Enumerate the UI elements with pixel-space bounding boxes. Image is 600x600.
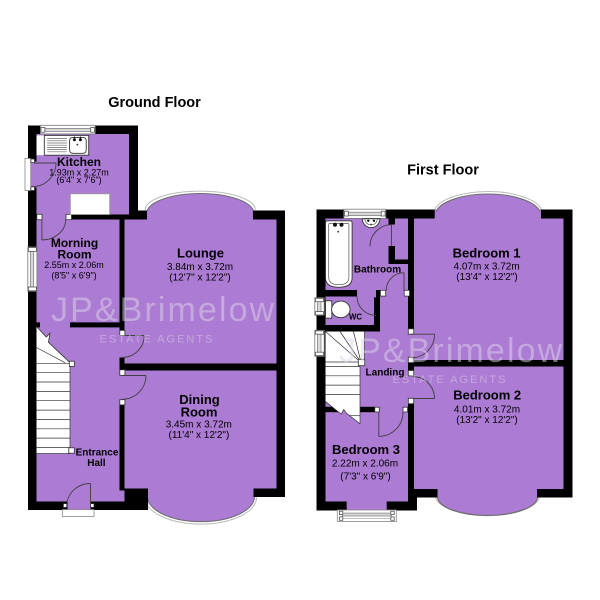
svg-text:(11'4" x 12'2"): (11'4" x 12'2") (169, 430, 230, 441)
svg-text:4.01m x 3.72m: 4.01m x 3.72m (454, 404, 520, 415)
svg-text:JP&Brimelow: JP&Brimelow (339, 332, 564, 370)
svg-text:(13'4" x 12'2"): (13'4" x 12'2") (456, 272, 518, 283)
svg-text:JP&Brimelow: JP&Brimelow (51, 291, 276, 329)
svg-text:ESTATE AGENTS: ESTATE AGENTS (393, 374, 508, 386)
svg-text:(6'4" x 7'6"): (6'4" x 7'6") (56, 175, 101, 185)
svg-text:4.07m x 3.72m: 4.07m x 3.72m (454, 262, 520, 273)
svg-text:Bedroom 1: Bedroom 1 (453, 246, 521, 261)
svg-text:Room: Room (181, 404, 218, 419)
svg-text:2.22m x 2.06m: 2.22m x 2.06m (332, 458, 398, 469)
svg-text:First Floor: First Floor (407, 163, 479, 179)
svg-text:ESTATE AGENTS: ESTATE AGENTS (100, 334, 215, 346)
svg-text:2.55m x 2.06m: 2.55m x 2.06m (44, 260, 104, 270)
svg-text:3.84m x 3.72m: 3.84m x 3.72m (167, 262, 233, 273)
svg-text:Hall: Hall (87, 458, 106, 469)
svg-text:(12'7" x 12'2"): (12'7" x 12'2") (169, 272, 231, 283)
svg-text:Landing: Landing (366, 368, 405, 379)
svg-text:Bedroom 3: Bedroom 3 (332, 442, 400, 457)
svg-text:(7'3" x 6'9"): (7'3" x 6'9") (340, 472, 390, 483)
svg-text:Entrance: Entrance (76, 448, 119, 459)
svg-text:Bedroom 2: Bedroom 2 (453, 388, 521, 403)
svg-text:Bathroom: Bathroom (354, 265, 401, 276)
svg-text:(8'5" x 6'9"): (8'5" x 6'9") (51, 270, 96, 280)
svg-text:Ground Floor: Ground Floor (108, 95, 201, 111)
svg-text:(13'2" x 12'2"): (13'2" x 12'2") (456, 415, 518, 426)
svg-text:Lounge: Lounge (177, 246, 224, 261)
svg-text:WC: WC (349, 313, 362, 322)
